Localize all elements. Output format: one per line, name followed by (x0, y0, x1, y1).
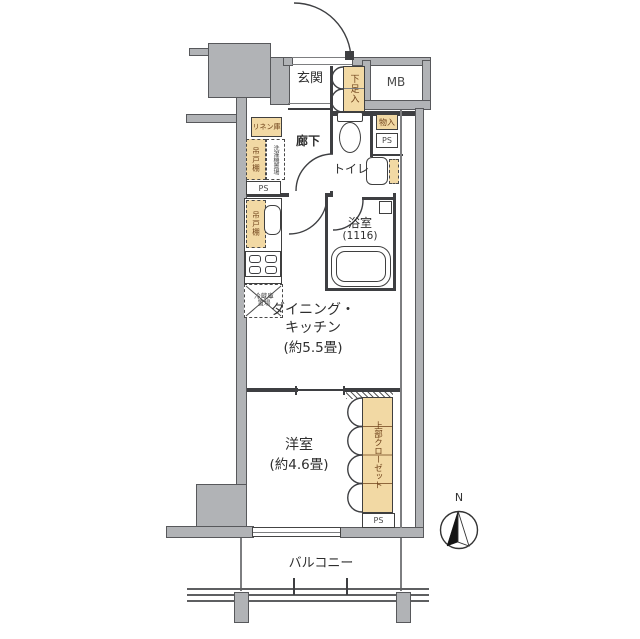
window-mid-line (253, 532, 340, 533)
entry-threshold-top (292, 57, 352, 58)
balcony-window (252, 527, 341, 537)
genkan-step-edge (288, 103, 332, 104)
genkan-step-line (288, 108, 332, 110)
opening-tick-right (343, 386, 345, 395)
washer-space: 洗濯機置場 (266, 139, 285, 180)
hanging-cabinet-upper: 吊戸棚 (246, 139, 266, 180)
ps-box-kitchen: PS (246, 181, 281, 195)
ps-box-bottom: PS (362, 513, 395, 528)
wall-balcony-right-bar (340, 527, 424, 538)
bath-left-wall (325, 193, 328, 291)
hanging-cabinet-lower-label: 吊戸棚 (251, 211, 262, 237)
burner-icon (265, 266, 277, 274)
balcony-floor-tick (346, 578, 348, 595)
closet-bifold-arc (348, 455, 362, 484)
toilet-left-wall-upper (330, 66, 333, 154)
wall-bottom-left-block (196, 484, 247, 530)
toilet-bowl (339, 122, 361, 153)
dk-western-opening-line (296, 389, 345, 391)
shoe-bifold-arc (332, 89, 344, 112)
entry-threshold-bottom (292, 64, 352, 65)
entry-door-hinge-block (345, 51, 354, 60)
western-room-label: 洋室 (285, 438, 313, 453)
dk-door-arc (289, 196, 327, 234)
washroom-divider (370, 154, 403, 156)
mb-label: MB (387, 76, 406, 89)
closet-bifold-arc (348, 484, 362, 513)
genkan-label: 玄関 (297, 72, 323, 86)
toilet-label: トイレ (333, 163, 369, 176)
ps-label-bottom: PS (374, 516, 384, 525)
compass-icon (430, 500, 490, 562)
western-size-label: (約4.6畳) (269, 458, 328, 472)
burner-icon (249, 266, 261, 274)
bath-label: 浴室 (348, 217, 372, 230)
floor-plan: 下足入 リネン庫 物入 PS 吊戸棚 洗濯機置場 PS 吊戸棚 冷蔵庫 置場 (0, 0, 640, 639)
balcony-railing-line (187, 588, 429, 590)
bath-corner-counter (379, 201, 392, 214)
shoe-box-label: 下足入 (348, 74, 361, 104)
wall-left-arm (189, 48, 209, 56)
balcony-divider-right (400, 538, 402, 591)
shoe-bifold-arc (332, 67, 343, 89)
ps-box-washroom: PS (376, 133, 398, 148)
opening-tick-left (295, 386, 297, 395)
toilet-door-arc (296, 154, 333, 191)
bathtub-inner (336, 251, 386, 282)
burner-icon (249, 255, 261, 263)
burner-icon (265, 255, 277, 263)
balcony-floor-tick (293, 578, 295, 595)
entry-door-arc (294, 3, 351, 60)
toilet-tank (337, 112, 363, 122)
closet-bifold-arc (348, 398, 362, 427)
shoe-box: 下足入 (343, 66, 365, 112)
linen-label: リネン庫 (253, 122, 281, 132)
north-label: N (455, 492, 463, 504)
hanging-cabinet-upper-label: 吊戸棚 (251, 147, 262, 173)
dk-size-label: (約5.5畳) (283, 341, 342, 355)
linen-closet: リネン庫 (251, 117, 282, 137)
hallway-label: 廊下 (296, 135, 320, 148)
kitchen-stove (245, 251, 281, 277)
balcony-railing-line (187, 594, 429, 596)
upper-closet: 上部クローゼット (362, 397, 393, 513)
washroom-cabinet (389, 159, 399, 184)
upper-closet-label: 上部クローゼット (372, 421, 384, 489)
bath-top-wall (362, 197, 396, 200)
shoe-box-divider (344, 88, 364, 89)
closet-bifold-arc (348, 427, 362, 456)
ps-label-kitchen: PS (259, 184, 269, 193)
bath-right-wall (393, 193, 396, 291)
washbasin (366, 157, 388, 185)
wall-balcony-left-bar (166, 526, 254, 538)
balcony-divider-left (240, 538, 242, 591)
storage-label: 物入 (379, 117, 395, 128)
balcony-railing-line (187, 600, 429, 602)
washer-space-label: 洗濯機置場 (271, 145, 280, 175)
unit-right-line (400, 110, 402, 528)
balcony-label: バルコニー (289, 557, 354, 571)
dk-label-line2: キッチン (285, 321, 341, 336)
ps-label-washroom: PS (382, 136, 392, 145)
dk-label-line1: ダイニング・ (271, 303, 355, 318)
balcony-post-right (396, 592, 411, 623)
bath-bottom-wall (325, 288, 396, 291)
kitchen-sink (264, 205, 281, 235)
hanging-cabinet-lower: 吊戸棚 (246, 200, 266, 248)
storage-box: 物入 (376, 114, 398, 130)
balcony-post-left (234, 592, 249, 623)
wall-top-left-block (208, 43, 271, 98)
dk-western-wall-left (247, 388, 298, 392)
toilet-right-wall (370, 111, 373, 157)
wall-right-outer (415, 108, 424, 538)
bath-size-label: (1116) (343, 231, 378, 242)
